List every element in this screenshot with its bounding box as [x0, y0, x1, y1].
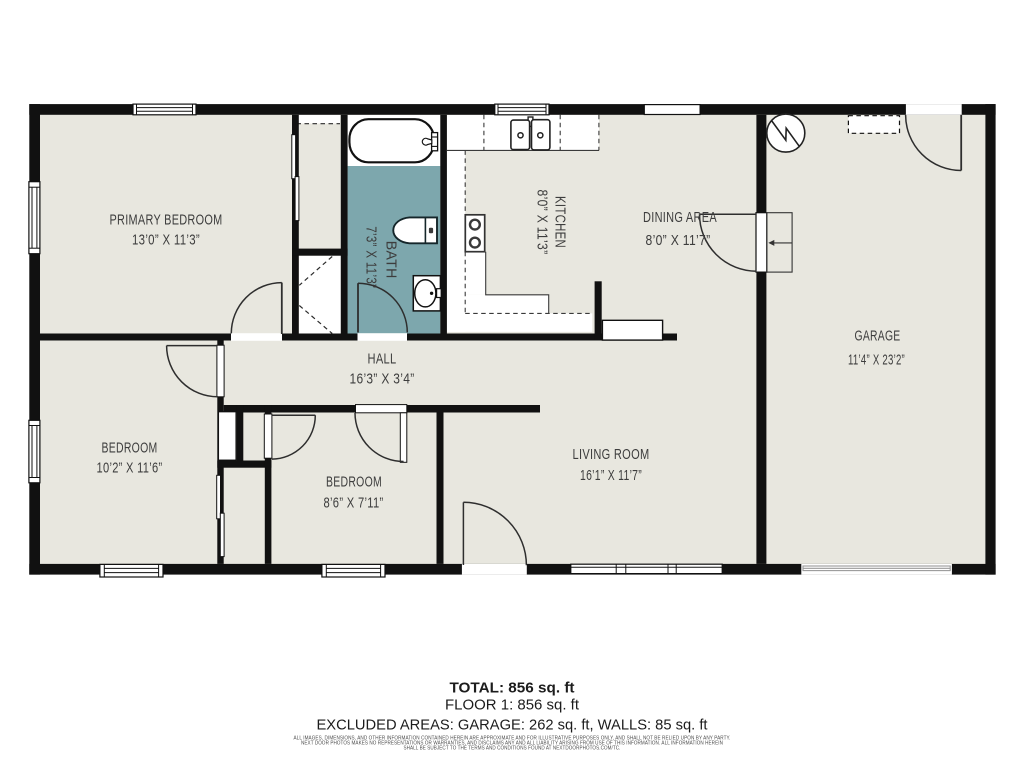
svg-text:KITCHEN: KITCHEN: [552, 196, 569, 248]
svg-text:HALL: HALL: [368, 351, 397, 368]
svg-text:8’0” X 11’7”: 8’0” X 11’7”: [646, 232, 711, 249]
svg-text:7’3” X 11’3”: 7’3” X 11’3”: [363, 226, 380, 288]
svg-text:BEDROOM: BEDROOM: [326, 474, 382, 491]
svg-text:DINING AREA: DINING AREA: [643, 209, 717, 226]
svg-text:13’0” X 11’3”: 13’0” X 11’3”: [132, 232, 200, 249]
svg-text:FLOOR 1: 856 sq. ft: FLOOR 1: 856 sq. ft: [445, 698, 579, 714]
svg-text:8’6” X 7’11”: 8’6” X 7’11”: [324, 495, 384, 512]
svg-text:EXCLUDED AREAS: GARAGE: 262 sq: EXCLUDED AREAS: GARAGE: 262 sq. ft, WALL…: [317, 718, 708, 734]
svg-text:BEDROOM: BEDROOM: [102, 440, 158, 457]
svg-text:GARAGE: GARAGE: [855, 328, 901, 345]
svg-text:PRIMARY BEDROOM: PRIMARY BEDROOM: [110, 212, 223, 229]
svg-text:16’3” X 3’4”: 16’3” X 3’4”: [350, 371, 415, 388]
svg-text:8’0” X 11’3”: 8’0” X 11’3”: [534, 190, 551, 255]
svg-text:BATH: BATH: [383, 241, 400, 279]
svg-text:TOTAL: 856 sq. ft: TOTAL: 856 sq. ft: [450, 680, 575, 696]
svg-text:LIVING ROOM: LIVING ROOM: [573, 446, 650, 463]
svg-text:SHALL BE SUBJECT TO THE TERMS: SHALL BE SUBJECT TO THE TERMS AND CONDIT…: [404, 746, 621, 752]
svg-text:10’2” X 11’6”: 10’2” X 11’6”: [97, 460, 163, 477]
svg-text:11’4” X 23’2”: 11’4” X 23’2”: [848, 352, 905, 369]
svg-text:16’1” X 11’7”: 16’1” X 11’7”: [580, 467, 642, 484]
